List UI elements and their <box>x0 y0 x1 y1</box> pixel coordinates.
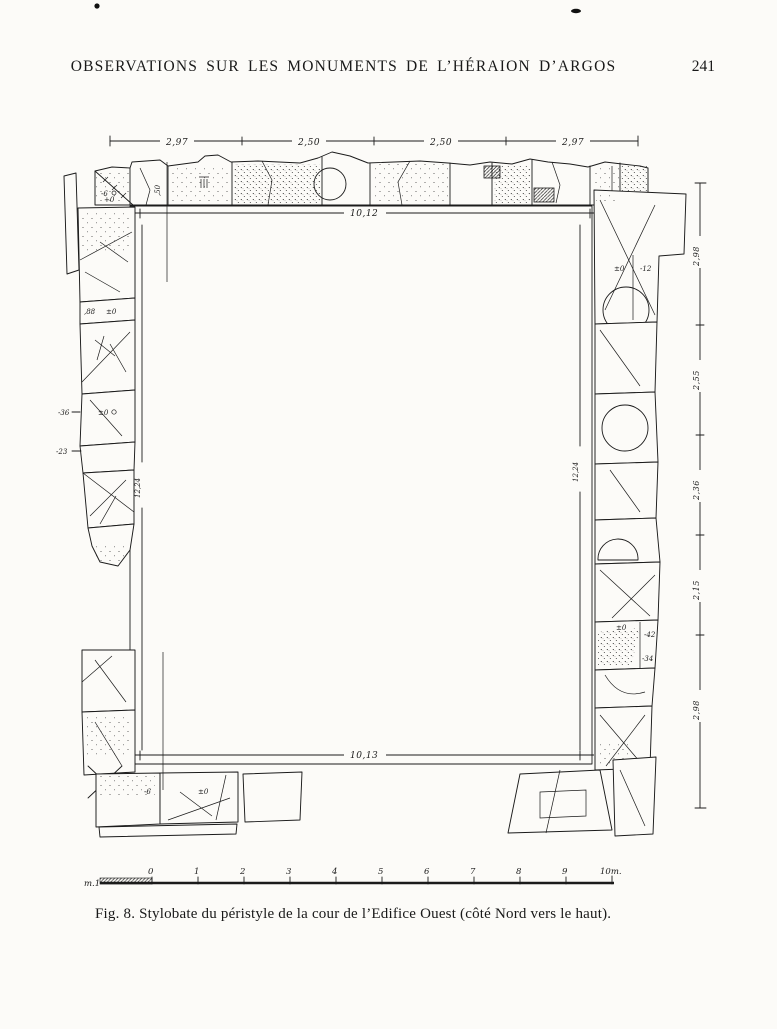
court-dim-right: 12,24 <box>572 462 580 482</box>
level-east-minus42: -42 <box>644 631 656 639</box>
level-east-minus12: -12 <box>640 265 652 273</box>
level-west-pm0b: ±0 <box>98 409 109 417</box>
east-stylobate: ±0 -12 ±0 -42 -34 <box>594 190 686 770</box>
level-south-minus6: -6 <box>144 788 151 796</box>
court-dim-bottom: 10,13 <box>350 751 378 761</box>
level-west-pm0: ±0 <box>106 308 117 316</box>
dim-top-4: 2,97 <box>561 138 584 148</box>
level-south-pm0: ±0 <box>198 788 209 796</box>
scan-specks <box>94 3 581 13</box>
scale-tick-0: 0 <box>148 867 154 877</box>
level-tl-plus0: +0 <box>104 196 115 204</box>
dim-top-1: 2,97 <box>165 138 188 148</box>
court-rectangle <box>130 206 592 764</box>
scale-tick-7: 7 <box>470 867 476 877</box>
scale-bar: m.1 0 1 2 3 4 5 6 7 8 9 10m. <box>84 867 622 889</box>
scale-tick-8: 8 <box>516 867 522 877</box>
scale-tick-2: 2 <box>239 867 245 877</box>
level-east-minus34: -34 <box>642 655 653 663</box>
level-west-minus23: -23 <box>56 448 68 456</box>
court-dim-left: 12,24 <box>134 478 142 498</box>
court-dim-top: 10,12 <box>350 209 378 219</box>
ruler-seg-4: 2,15 <box>692 580 701 601</box>
figure-caption: Fig. 8. Stylobate du péristyle de la cou… <box>95 906 715 923</box>
figure-8-plan: 2,97 2,50 2,50 2,97 ,50 ,50 -6 <box>0 0 777 1029</box>
scale-tick-4: 4 <box>331 867 337 877</box>
scale-left-label: m.1 <box>84 879 100 889</box>
west-stylobate: ,88 ±0 ±0 -36 -23 <box>56 173 135 566</box>
scale-tick-9: 9 <box>562 867 568 877</box>
scale-right-label: 10m. <box>600 867 622 877</box>
north-stylobate-band: ,50 ,50 -6 <box>95 152 648 330</box>
level-west-minus36: -36 <box>58 409 70 417</box>
scale-tick-3: 3 <box>286 867 291 877</box>
scale-tick-6: 6 <box>424 867 430 877</box>
top-dimension-line: 2,97 2,50 2,50 2,97 <box>110 134 638 148</box>
dim-top-2: 2,50 <box>297 138 320 148</box>
ruler-seg-1: 2,98 <box>692 246 701 267</box>
dim-top-3: 2,50 <box>429 138 452 148</box>
level-west-88: ,88 <box>84 308 96 316</box>
ruler-seg-2: 2,55 <box>692 370 701 391</box>
level-east-pm0-lower: ±0 <box>616 624 627 632</box>
right-ruler: 2,98 2,55 2,36 2,15 2,98 <box>692 183 706 808</box>
ruler-seg-3: 2,36 <box>692 480 701 501</box>
south-east-corner <box>508 757 656 836</box>
ruler-seg-5: 2,98 <box>692 700 701 721</box>
stylobate-plan-svg: 2,97 2,50 2,50 2,97 ,50 ,50 -6 <box>0 0 777 1024</box>
depth-left-label: ,50 <box>154 184 162 196</box>
scale-tick-1: 1 <box>194 867 199 877</box>
scale-tick-5: 5 <box>378 867 383 877</box>
south-stylobate: -6 ±0 <box>82 650 302 837</box>
court-dimension-lines: +0 ,88 10,12 ,82 ,81 10,13 ,80 12,24 12,… <box>85 196 655 761</box>
level-east-pm0-upper: ±0 <box>614 265 625 273</box>
